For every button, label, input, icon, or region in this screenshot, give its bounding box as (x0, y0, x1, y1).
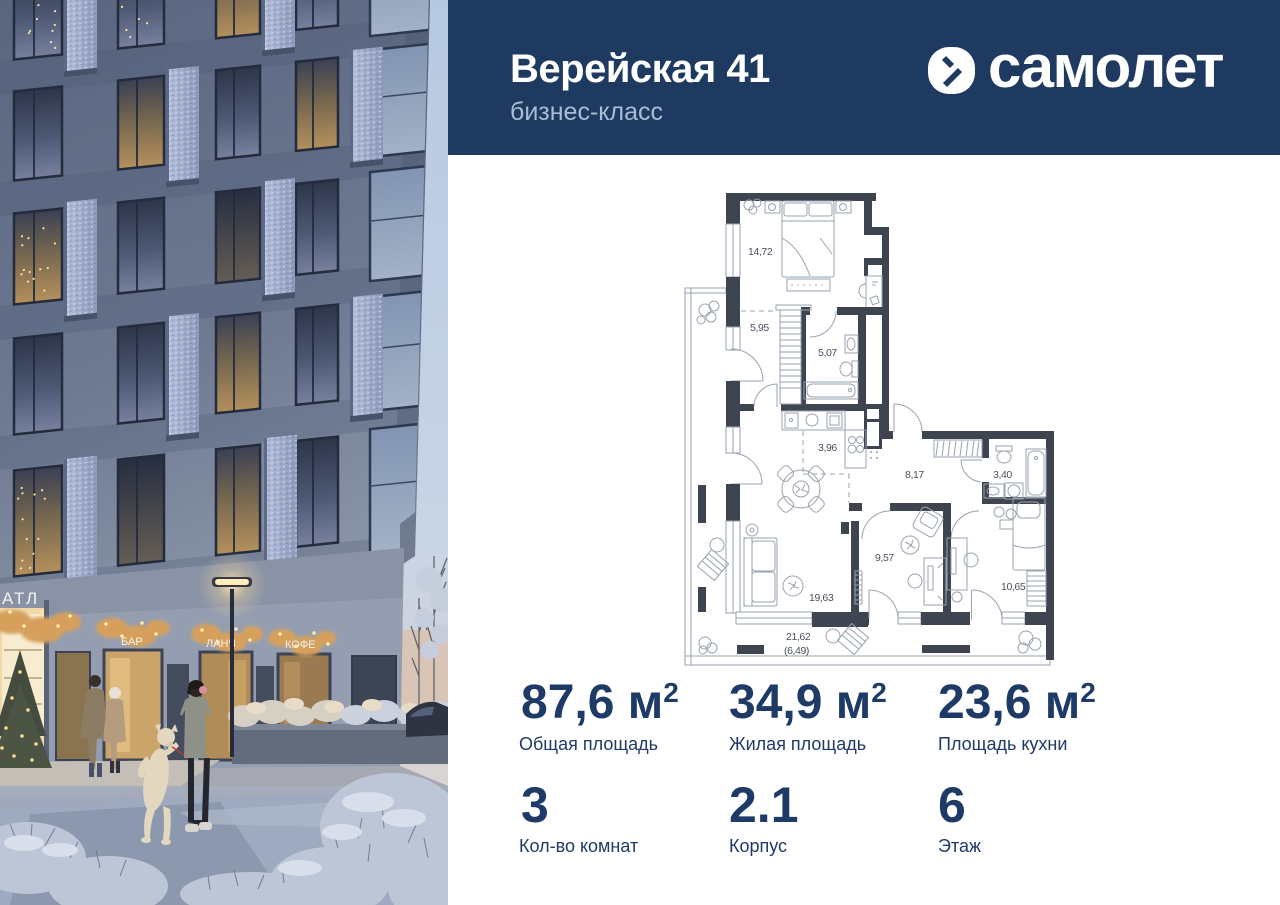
svg-text:КОФЕ: КОФЕ (285, 639, 316, 651)
svg-text:10,65: 10,65 (1001, 581, 1026, 593)
svg-text:14,72: 14,72 (748, 246, 773, 258)
svg-text:(6,49): (6,49) (784, 645, 809, 657)
svg-text:8,17: 8,17 (905, 469, 924, 481)
svg-text:БАР: БАР (121, 636, 143, 648)
svg-text:3,40: 3,40 (993, 469, 1012, 481)
svg-text:9,57: 9,57 (875, 552, 894, 564)
svg-text:5,95: 5,95 (750, 322, 769, 334)
svg-text:19,63: 19,63 (809, 592, 834, 604)
svg-text:5,07: 5,07 (818, 347, 837, 359)
svg-text:21,62: 21,62 (786, 631, 811, 643)
svg-text:3,96: 3,96 (818, 442, 837, 454)
svg-text:АТЛ: АТЛ (2, 589, 39, 608)
svg-text:самолет: самолет (988, 33, 1223, 100)
